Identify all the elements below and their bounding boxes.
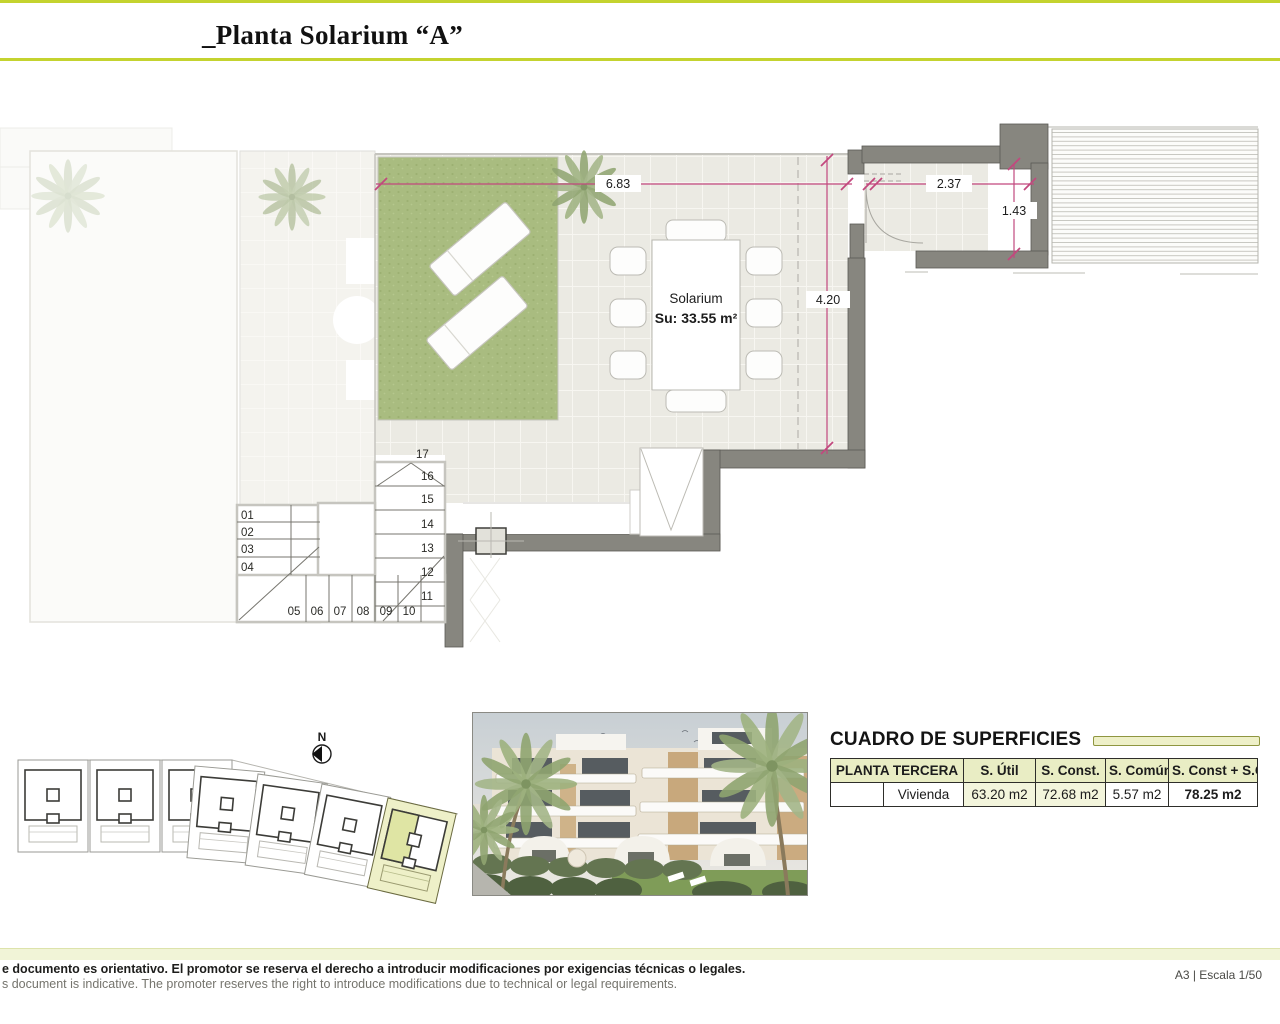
room-area-label: Su: 33.55 m²	[655, 310, 738, 326]
svg-text:12: 12	[421, 567, 434, 579]
svg-text:09: 09	[380, 606, 393, 618]
plan-sheet: { "header": { "title": "_Planta Solarium…	[0, 0, 1280, 1024]
cell-empty	[831, 783, 884, 807]
stair-void-skylight	[640, 448, 703, 536]
svg-text:03: 03	[241, 544, 254, 556]
footer-accent-band	[0, 948, 1280, 960]
neighbour-terrace-faded	[0, 128, 237, 622]
col-total: S. Const + S.C	[1169, 759, 1258, 783]
disclaimer-en: s document is indicative. The promoter r…	[2, 977, 745, 992]
site-plan: N	[10, 722, 470, 922]
col-util: S. Útil	[964, 759, 1036, 783]
dim-depth: 4.20	[816, 293, 840, 307]
floor-plan: 01 02 03 04 05 06 07 08 09 10 11 12 13 1…	[0, 0, 1280, 700]
surfaces-data-row: Vivienda 63.20 m2 72.68 m2 5.57 m2 78.25…	[831, 783, 1258, 807]
surfaces-header-row: PLANTA TERCERA S. Útil S. Const. S. Comú…	[831, 759, 1258, 783]
svg-text:06: 06	[311, 606, 324, 618]
disclaimer-es: e documento es orientativo. El promotor …	[2, 962, 745, 977]
svg-text:01: 01	[241, 510, 254, 522]
svg-text:15: 15	[421, 494, 434, 506]
building-render	[472, 712, 808, 896]
svg-text:04: 04	[241, 562, 254, 574]
svg-text:07: 07	[334, 606, 347, 618]
svg-text:13: 13	[421, 543, 434, 555]
svg-text:05: 05	[288, 606, 301, 618]
svg-text:14: 14	[421, 519, 434, 531]
surfaces-panel: CUADRO DE SUPERFICIES PLANTA TERCERA S. …	[830, 729, 1260, 807]
site-building-1	[18, 760, 88, 852]
svg-text:10: 10	[403, 606, 416, 618]
svg-text:08: 08	[357, 606, 370, 618]
north-arrow-icon: N	[312, 730, 331, 763]
col-planta: PLANTA TERCERA	[831, 759, 964, 783]
svg-text:16: 16	[421, 471, 434, 483]
col-comun: S. Común	[1106, 759, 1169, 783]
cell-name: Vivienda	[884, 783, 964, 807]
surfaces-title: CUADRO DE SUPERFICIES	[830, 729, 1081, 751]
cell-comun: 5.57 m2	[1106, 783, 1169, 807]
disclaimer: e documento es orientativo. El promotor …	[2, 962, 745, 992]
cell-util: 63.20 m2	[964, 783, 1036, 807]
cell-total: 78.25 m2	[1169, 783, 1258, 807]
dim-room-width: 2.37	[937, 177, 961, 191]
col-const: S. Const.	[1036, 759, 1106, 783]
north-label: N	[318, 730, 327, 744]
grass-area	[378, 157, 558, 420]
sheet-info: A3 | Escala 1/50	[1175, 968, 1262, 982]
site-building-2	[90, 760, 160, 852]
surfaces-title-bar	[1093, 736, 1260, 746]
svg-text:11: 11	[421, 591, 433, 603]
svg-text:02: 02	[241, 527, 254, 539]
svg-text:17: 17	[416, 449, 429, 461]
room-label: Solarium	[669, 291, 722, 306]
cell-const: 72.68 m2	[1036, 783, 1106, 807]
surfaces-table: PLANTA TERCERA S. Útil S. Const. S. Comú…	[830, 758, 1258, 807]
dim-total-width: 6.83	[606, 177, 630, 191]
dim-room-depth: 1.43	[1002, 204, 1026, 218]
